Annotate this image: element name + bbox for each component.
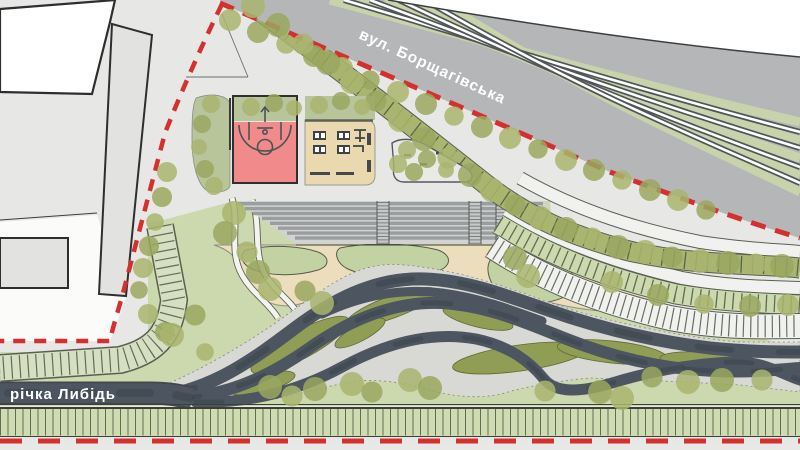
tree-icon — [387, 81, 409, 103]
tree-icon — [196, 160, 214, 178]
tree-icon — [184, 304, 205, 325]
tree-icon — [213, 221, 237, 245]
tree-icon — [242, 98, 260, 116]
site-plan-canvas: вул. Борщагівська річка Либідь — [0, 0, 800, 450]
tree-icon — [661, 246, 682, 267]
tree-icon — [606, 235, 630, 259]
tree-icon — [770, 254, 794, 278]
tree-icon — [152, 187, 172, 207]
tree-icon — [471, 116, 493, 138]
tree-icon — [354, 99, 370, 115]
tree-icon — [676, 370, 700, 394]
tree-icon — [528, 139, 547, 158]
tree-icon — [193, 115, 211, 133]
tree-icon — [716, 251, 740, 275]
tree-icon — [528, 206, 552, 230]
tree-icon — [133, 258, 153, 278]
tree-icon — [694, 294, 713, 313]
tree-icon — [316, 51, 340, 75]
tree-icon — [146, 213, 164, 231]
tree-icon — [361, 381, 382, 402]
tree-icon — [196, 343, 214, 361]
tree-icon — [247, 21, 269, 43]
tree-icon — [138, 304, 158, 324]
tree-icon — [739, 295, 761, 317]
tree-icon — [139, 236, 159, 256]
tree-icon — [415, 93, 437, 115]
tree-icon — [130, 281, 148, 299]
tree-icon — [480, 178, 504, 202]
tree-icon — [710, 368, 734, 392]
building-small — [0, 238, 68, 288]
tree-icon — [286, 100, 302, 116]
tree-icon — [332, 92, 350, 110]
tree-icon — [516, 264, 540, 288]
tree-icon — [534, 380, 555, 401]
tree-icon — [601, 271, 623, 293]
tree-icon — [266, 13, 290, 37]
tree-icon — [205, 177, 223, 195]
tree-icon — [202, 95, 220, 113]
tree-icon — [310, 291, 334, 315]
tree-icon — [418, 150, 436, 168]
tree-icon — [191, 139, 207, 155]
tree-icon — [639, 179, 661, 201]
tree-icon — [444, 106, 463, 125]
tree-icon — [504, 194, 525, 215]
tree-icon — [696, 200, 715, 219]
tree-icon — [751, 369, 772, 390]
tree-icon — [458, 163, 482, 187]
tree-icon — [633, 240, 657, 264]
tree-icon — [258, 277, 282, 301]
tree-icon — [303, 377, 327, 401]
tree-icon — [405, 163, 423, 181]
tree-icon — [612, 170, 631, 189]
tree-icon — [258, 375, 282, 399]
site-plan: вул. Борщагівська річка Либідь — [0, 0, 800, 450]
tree-icon — [688, 249, 712, 273]
tree-icon — [641, 366, 662, 387]
tree-icon — [499, 127, 521, 149]
tree-icon — [581, 227, 602, 248]
tree-icon — [340, 372, 364, 396]
tree-icon — [388, 108, 412, 132]
tree-icon — [438, 162, 454, 178]
tree-icon — [588, 380, 612, 404]
tree-icon — [389, 155, 407, 173]
tree-icon — [157, 162, 177, 182]
tree-icon — [667, 189, 689, 211]
tree-icon — [340, 70, 364, 94]
tree-icon — [160, 323, 184, 347]
tree-icon — [219, 9, 241, 31]
tree-icon — [583, 159, 605, 181]
tree-icon — [647, 284, 669, 306]
tree-icon — [265, 94, 283, 112]
tree-icon — [418, 376, 442, 400]
tree-icon — [236, 241, 257, 262]
tree-icon — [281, 385, 302, 406]
tree-icon — [777, 294, 799, 316]
tree-icon — [555, 149, 577, 171]
river-label: річка Либідь — [10, 386, 116, 403]
tree-icon — [610, 386, 634, 410]
tree-icon — [745, 253, 766, 274]
tree-icon — [310, 96, 328, 114]
tree-icon — [554, 217, 578, 241]
tree-icon — [292, 33, 313, 54]
